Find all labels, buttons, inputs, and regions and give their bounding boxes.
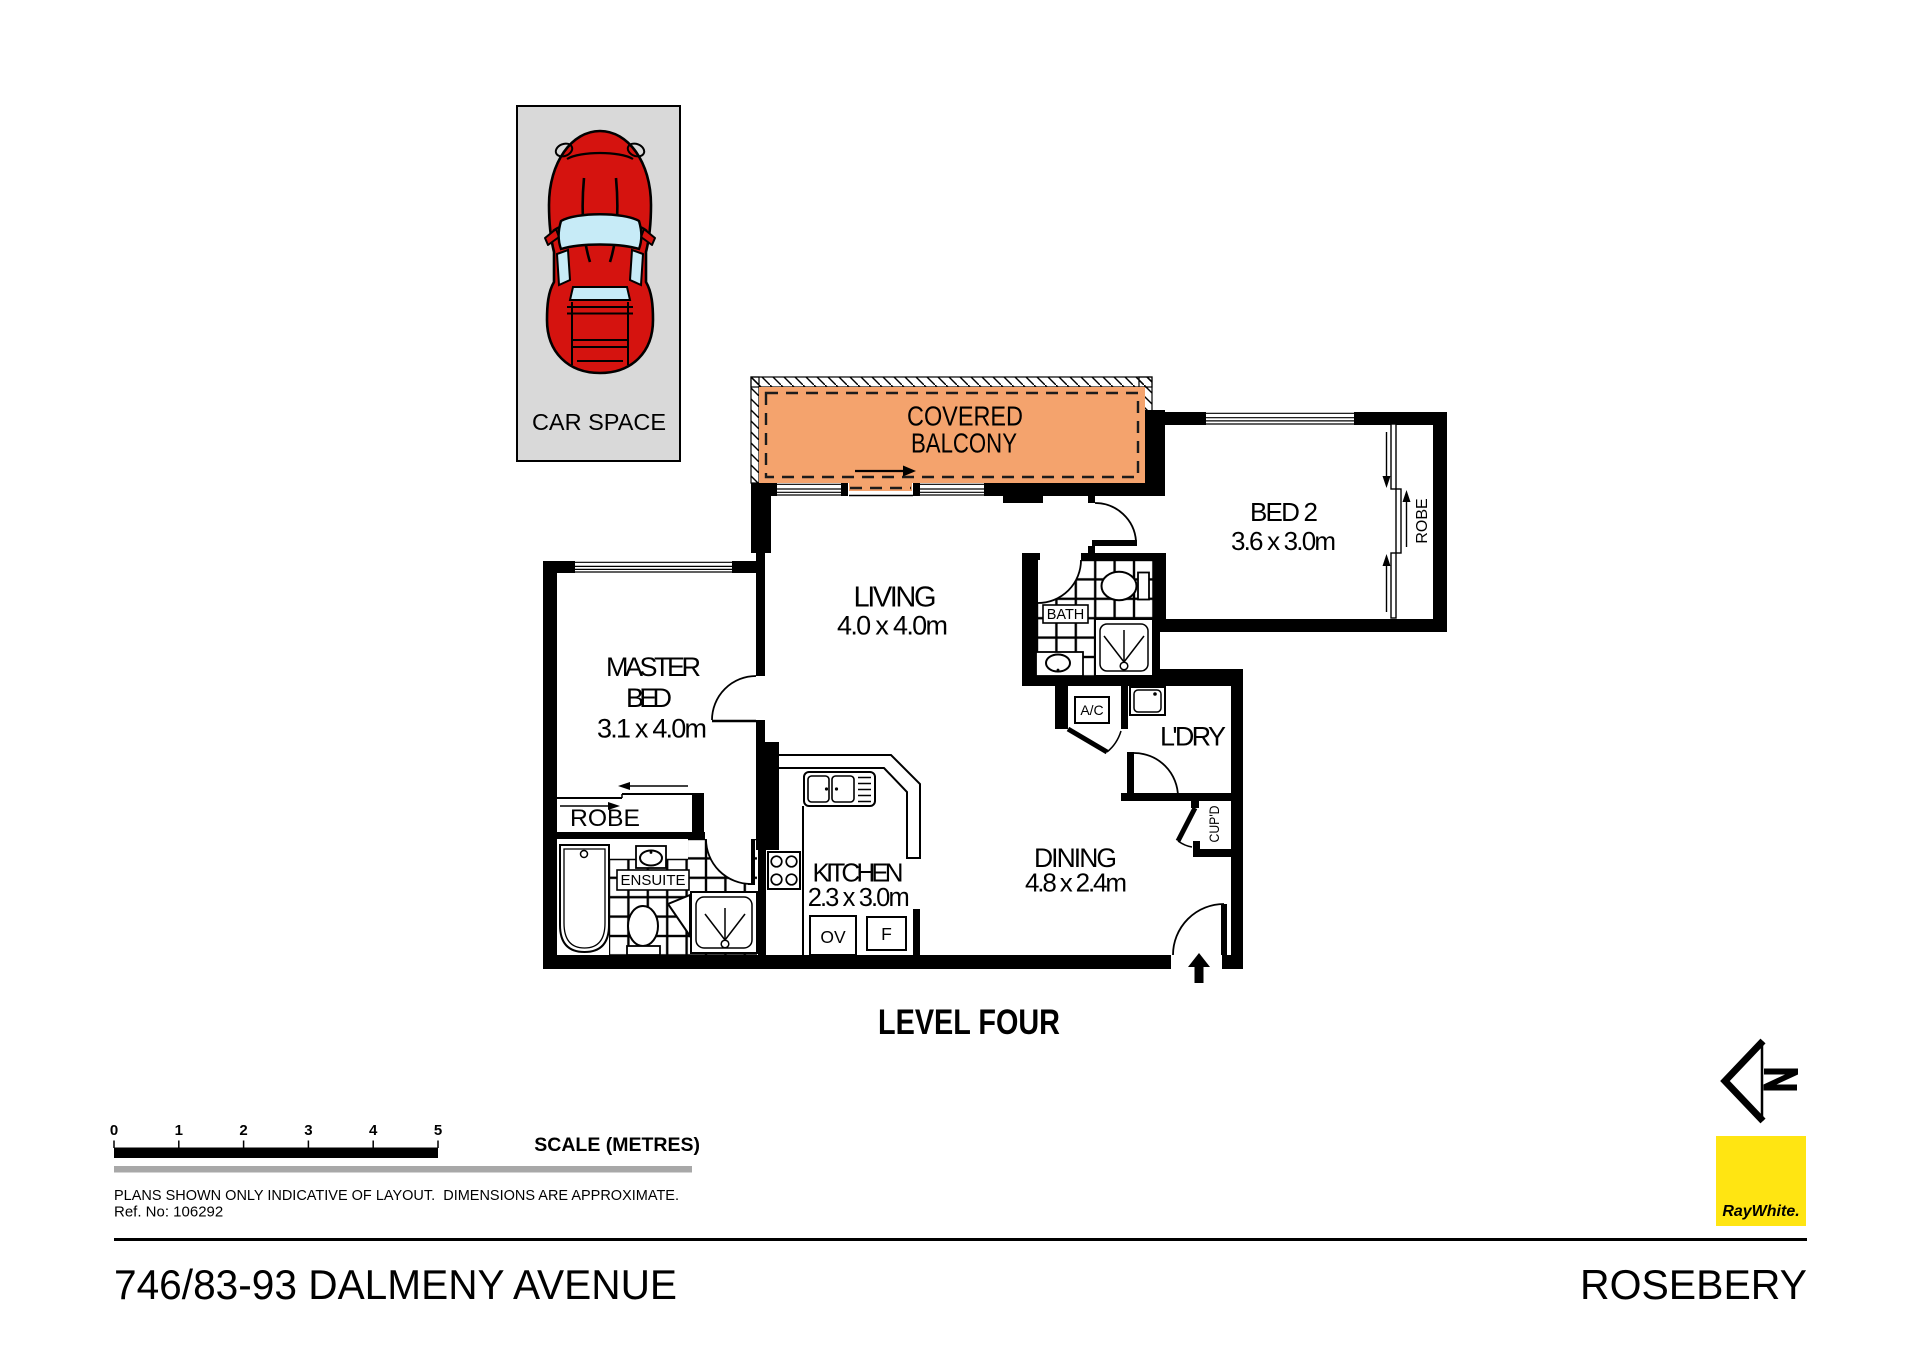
svg-text:3.1 x 4.0m: 3.1 x 4.0m	[597, 714, 707, 744]
svg-text:2: 2	[239, 1122, 247, 1139]
svg-text:CAR SPACE: CAR SPACE	[532, 409, 666, 435]
svg-text:BATH: BATH	[1047, 607, 1085, 623]
svg-text:ROSEBERY: ROSEBERY	[1580, 1261, 1807, 1308]
svg-text:746/83-93 DALMENY AVENUE: 746/83-93 DALMENY AVENUE	[114, 1261, 677, 1308]
svg-text:4.8 x 2.4m: 4.8 x 2.4m	[1025, 868, 1127, 898]
svg-text:LEVEL FOUR: LEVEL FOUR	[878, 1003, 1060, 1042]
svg-text:SCALE (METRES): SCALE (METRES)	[534, 1134, 700, 1156]
svg-text:4.0 x 4.0m: 4.0 x 4.0m	[837, 611, 948, 641]
svg-text:BALCONY: BALCONY	[911, 428, 1017, 459]
svg-text:4: 4	[369, 1122, 378, 1139]
svg-text:MASTER: MASTER	[606, 652, 701, 682]
svg-text:ROBE: ROBE	[1414, 498, 1431, 543]
svg-text:3: 3	[304, 1122, 312, 1139]
svg-text:BED 2: BED 2	[1250, 497, 1318, 527]
svg-text:LIVING: LIVING	[854, 582, 937, 614]
svg-text:KITCHEN: KITCHEN	[813, 858, 904, 888]
svg-text:0: 0	[110, 1122, 118, 1139]
svg-text:Ref. No: 106292: Ref. No: 106292	[114, 1204, 223, 1221]
svg-text:ROBE: ROBE	[570, 805, 640, 832]
svg-text:OV: OV	[820, 927, 846, 947]
svg-text:ENSUITE: ENSUITE	[620, 872, 685, 889]
svg-text:1: 1	[175, 1122, 183, 1139]
svg-text:3.6 x 3.0m: 3.6 x 3.0m	[1231, 526, 1336, 556]
svg-text:5: 5	[434, 1122, 442, 1139]
svg-text:F: F	[881, 924, 892, 944]
svg-text:2.3 x 3.0m: 2.3 x 3.0m	[808, 884, 910, 912]
svg-text:L'DRY: L'DRY	[1160, 722, 1226, 752]
svg-text:A/C: A/C	[1080, 702, 1103, 718]
svg-text:RayWhite.: RayWhite.	[1722, 1203, 1799, 1220]
svg-text:BED: BED	[626, 683, 672, 713]
svg-text:CUP'D: CUP'D	[1207, 805, 1222, 842]
svg-text:PLANS SHOWN ONLY INDICATIVE OF: PLANS SHOWN ONLY INDICATIVE OF LAYOUT. D…	[114, 1187, 679, 1204]
